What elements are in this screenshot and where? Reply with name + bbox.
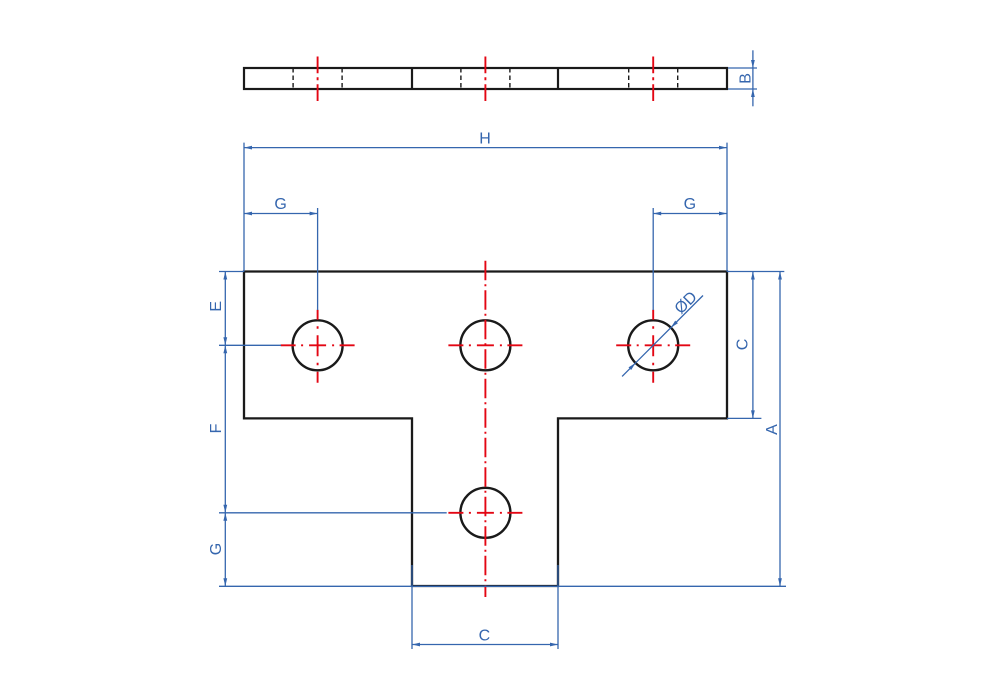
svg-text:G: G [684,196,696,213]
svg-text:B: B [738,73,755,84]
svg-text:G: G [208,543,225,555]
svg-text:E: E [208,301,225,312]
svg-text:F: F [208,423,225,433]
svg-text:G: G [274,196,286,213]
svg-text:H: H [479,131,491,148]
svg-text:A: A [764,424,781,435]
svg-text:C: C [479,628,491,645]
svg-text:C: C [735,339,752,351]
